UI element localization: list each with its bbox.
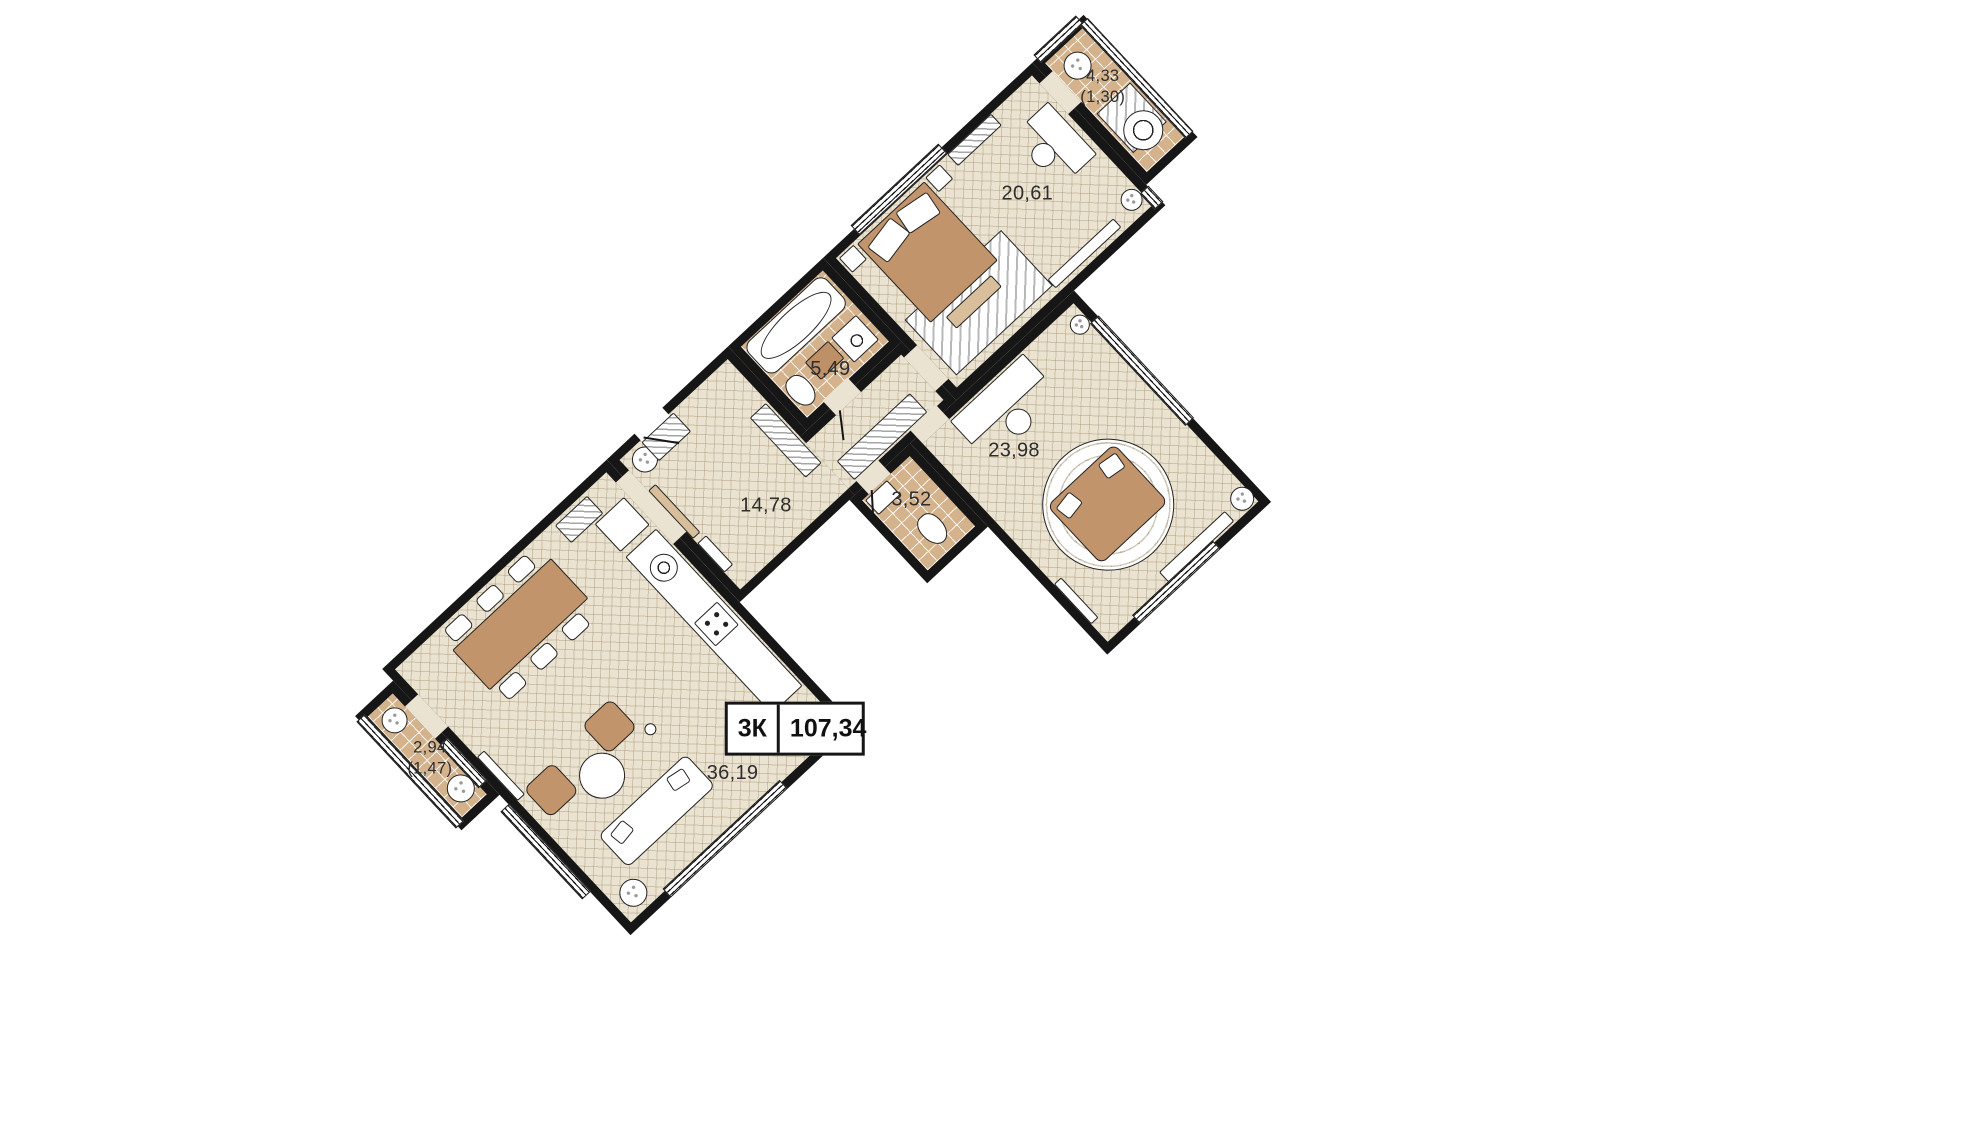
room-area-label: 4,33 (1,30) (1069, 66, 1137, 107)
room-area-label: 23,98 (988, 439, 1040, 462)
coffee-table (570, 743, 635, 808)
dresser (947, 114, 1002, 167)
room-area-label: 36,19 (707, 762, 759, 785)
balcony-area: 4,33 (1069, 66, 1137, 87)
balcony-area-reduced: (1,30) (1069, 87, 1137, 108)
plant (614, 873, 654, 913)
floor-plan-canvas: 36,19 14,78 5,49 (0, 0, 1980, 1143)
room-area-label: 3,52 (891, 489, 931, 512)
apartment-total-area: 107,34 (777, 705, 876, 753)
room-area-label: 14,78 (740, 494, 792, 517)
room-area-label: 20,61 (1002, 182, 1054, 205)
floor-plan: 36,19 14,78 5,49 (339, 0, 1461, 1094)
shoe-cabinet (555, 496, 604, 544)
toilet (912, 508, 953, 549)
plant (1116, 184, 1147, 215)
armchair (523, 762, 580, 819)
plant (1225, 482, 1259, 516)
armchair (581, 698, 638, 755)
room-area-label: 2,94 (1,47) (399, 737, 461, 778)
apartment-type-label: 3К (728, 705, 777, 753)
balcony-area-reduced: (1,47) (399, 758, 461, 779)
balcony-area: 2,94 (399, 737, 461, 758)
room-area-label: 5,49 (810, 358, 850, 381)
bench (1054, 577, 1099, 624)
floor-lamp (642, 721, 659, 738)
plant (1066, 311, 1094, 339)
tv-stand (1047, 218, 1121, 288)
apartment-type-box: 3К 107,34 (725, 702, 865, 756)
